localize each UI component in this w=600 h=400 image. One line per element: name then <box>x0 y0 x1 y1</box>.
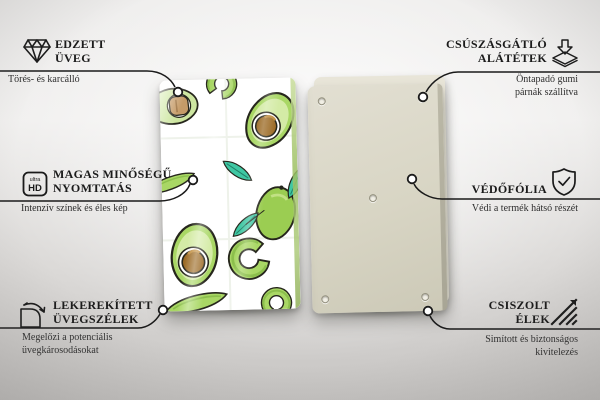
avocado-pattern-print <box>159 77 300 311</box>
feature-title-rounded-glass-edges: LEKEREKÍTETT ÜVEGSZÉLEK <box>53 298 153 326</box>
feature-subtitle-anti-slip-pads: Öntapadó gumi párnák szállítva <box>515 74 578 99</box>
mounting-hole <box>418 94 426 102</box>
mounting-hole <box>421 293 429 301</box>
feature-subtitle-polished-edges: Simított és biztonságos kivitelezés <box>485 334 578 359</box>
shield-check-icon <box>551 167 577 202</box>
feature-subtitle-rounded-glass-edges: Megelőzi a potenciális üvegkárosodásokat <box>22 332 113 357</box>
feature-subtitle-tempered-glass: Törés- és karcálló <box>8 74 80 87</box>
feature-title-anti-slip-pads: CSÚSZÁSGÁTLÓ ALÁTÉTEK <box>446 37 547 65</box>
product-feature-infographic: EDZETT ÜVEG Törés- és karcálló ultra HD … <box>0 0 600 400</box>
anti-slip-pad-icon <box>550 38 580 73</box>
feature-title-tempered-glass: EDZETT ÜVEG <box>55 37 106 65</box>
feature-title-polished-edges: CSISZOLT ÉLEK <box>489 298 550 326</box>
polished-edge-icon <box>550 298 578 331</box>
mounting-hole <box>321 295 329 303</box>
back-panel <box>307 83 447 313</box>
ultra-hd-icon: ultra HD <box>22 171 48 202</box>
diamond-icon <box>23 38 51 69</box>
rounded-corner-icon <box>18 301 48 334</box>
feature-title-high-quality-print: MAGAS MINŐSÉGŰ NYOMTATÁS <box>53 167 172 195</box>
feature-subtitle-protective-film: Védi a termék hátsó részét <box>472 203 578 216</box>
svg-text:HD: HD <box>28 183 42 194</box>
feature-title-protective-film: VÉDŐFÓLIA <box>472 182 547 196</box>
mounting-hole <box>369 194 377 202</box>
front-panel <box>159 77 300 311</box>
feature-subtitle-high-quality-print: Intenzív színek és éles kép <box>21 203 128 216</box>
mounting-hole <box>318 97 326 105</box>
